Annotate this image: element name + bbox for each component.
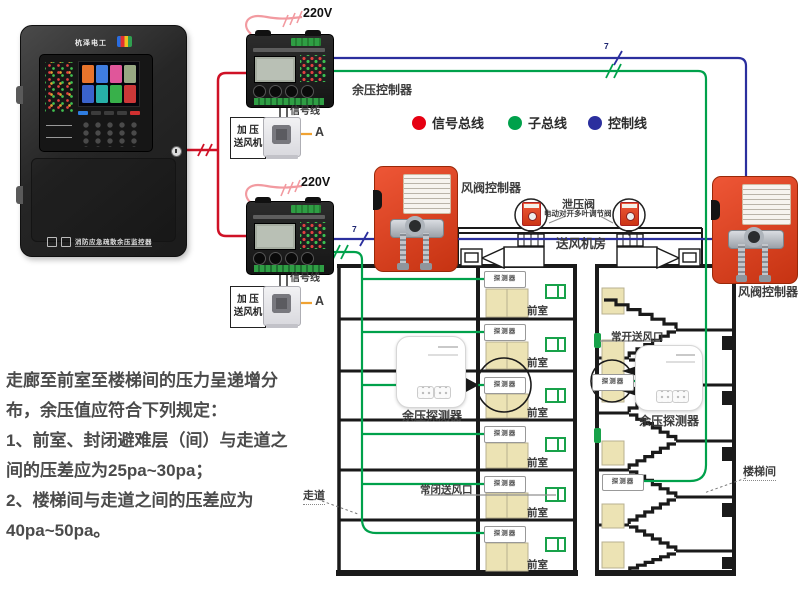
device-label-panel: [742, 184, 791, 224]
keypad: [80, 121, 140, 147]
legend-dot-subbus: [508, 116, 522, 130]
detector-box: 探测器: [592, 374, 634, 391]
note-line: 40pa~50pa。: [6, 516, 336, 546]
front-room-label: 前室: [527, 405, 548, 420]
controller-buttons: [253, 252, 314, 265]
cabinet-nameplate: 消防应急疏散余压监控器: [47, 236, 171, 247]
mounting-ear: [305, 30, 321, 36]
nc-outlet-label: 常闭送风口: [420, 482, 473, 497]
pressure-monitor-cabinet: 杭泽电工 消防应急疏散余压监控器: [20, 25, 187, 257]
ammeter-label-2: A: [315, 294, 324, 308]
device-text-line: [676, 354, 696, 356]
note-line: 1、前室、封闭避难层（间）与走道之: [6, 426, 336, 456]
note-line: 2、楼梯间与走道之间的压差应为: [6, 486, 336, 516]
terminal-block: [291, 205, 321, 213]
cabinet-hinge: [16, 86, 23, 104]
label-slot: [46, 137, 72, 138]
device-title-strip: [253, 48, 325, 52]
clamp-rod: [738, 244, 745, 276]
legend-label-signal: 信号总线: [432, 113, 484, 132]
front-room-label: 前室: [527, 455, 548, 470]
wire-count-mark: 7: [604, 41, 609, 51]
pressure-detector-device-right: [635, 345, 703, 411]
fan-room-label: 送风机房: [556, 233, 606, 252]
clamp-nut: [397, 263, 408, 270]
cabinet-lock: [171, 146, 182, 157]
no-vent-marker: [594, 333, 601, 348]
mounting-ear: [255, 30, 271, 36]
note-line: 布，余压值应符合下列规定：: [6, 396, 336, 426]
device-text-line: [666, 361, 695, 363]
led-matrix: [300, 222, 326, 249]
clamp-rod: [762, 244, 769, 276]
cabinet-lower-door: [31, 158, 176, 242]
label-slot: [46, 125, 72, 126]
legend-label-subbus: 子总线: [528, 113, 567, 132]
note-line: 走廊至前室至楼梯间的压力呈递增分: [6, 366, 336, 396]
detector-box: 探测器: [602, 474, 644, 491]
power-label-2: 220V: [301, 175, 330, 189]
touch-screen: [78, 61, 140, 107]
lcd-display: [254, 56, 296, 83]
note-line: 间的压差应为25pa~30pa；: [6, 456, 336, 486]
device-text-line: [438, 346, 458, 348]
detector-box: 探测器: [484, 526, 526, 543]
clamp-nut: [736, 275, 748, 282]
function-buttons: [78, 111, 140, 117]
terminal-block: [291, 38, 321, 46]
detector-button: [672, 390, 689, 403]
ammeter-label-1: A: [315, 125, 324, 139]
device-title-strip: [253, 215, 325, 219]
legend-label-control: 控制线: [608, 113, 647, 132]
wire-count-mark: 7: [352, 224, 357, 234]
clamp-nut: [759, 275, 771, 282]
wifi-icon: [61, 237, 71, 247]
clamp-nut: [420, 263, 431, 270]
fan-box-text: 送风机: [231, 138, 265, 151]
fan-box-text: 送风机: [231, 307, 265, 320]
damper-controller-left: [374, 166, 458, 272]
signal-line-label-1: 信号线: [290, 102, 320, 117]
front-room-label: 前室: [527, 303, 548, 318]
fan-box-text: 加 压: [231, 294, 265, 307]
side-notch: [711, 200, 720, 220]
power-label-1: 220V: [303, 6, 332, 20]
cabinet-brand: 杭泽电工: [75, 38, 107, 48]
pressure-detector-label-right: 余压探测器: [639, 412, 699, 429]
front-room-label: 前室: [527, 505, 548, 520]
relief-valve-device: [522, 202, 541, 226]
legend-dot-signal: [412, 116, 426, 130]
mounting-ear: [305, 197, 321, 203]
detector-box: 探测器: [484, 426, 526, 443]
air-outlet-icons: [546, 285, 565, 551]
cabinet-model-text: 消防应急疏散余压监控器: [75, 236, 152, 247]
controller-label: 余压控制器: [352, 81, 412, 98]
signal-line-label-2: 信号线: [290, 269, 320, 284]
legend-dot-control: [588, 116, 602, 130]
led-matrix: [300, 55, 326, 82]
led-indicators: [45, 62, 73, 112]
clamp-rod: [400, 233, 407, 264]
damper-controller-right: [712, 176, 798, 284]
mounting-ear: [255, 197, 271, 203]
cabinet-panel: [39, 54, 153, 152]
no-vent-marker: [594, 428, 601, 443]
detector-box: 探测器: [484, 324, 526, 341]
pressurized-fan-box-2: 加 压 送风机: [230, 286, 266, 328]
cabinet-hinge: [16, 186, 23, 204]
cabinet-logo: [117, 36, 132, 47]
diagram-canvas: 杭泽电工 消防应急疏散余压监控器 加 压 送风机 加 压 送风机: [0, 0, 800, 590]
relief-valve-sub-label: 电动对开多叶调节阀: [544, 208, 612, 219]
detector-box: 探测器: [484, 271, 526, 288]
pressure-controller-1: [246, 34, 334, 108]
detector-button: [417, 386, 434, 399]
bluetooth-icon: [47, 237, 57, 247]
fan-box-text: 加 压: [231, 125, 265, 138]
device-label-panel: [403, 174, 451, 213]
stairwell-label: 楼梯间: [743, 463, 776, 481]
damper-controller-label-right: 风阀控制器: [738, 283, 798, 300]
front-room-label: 前室: [527, 557, 548, 572]
damper-controller-label-left: 风阀控制器: [461, 179, 521, 196]
current-transformer-2: [263, 286, 301, 326]
pressure-controller-2: [246, 201, 334, 275]
relief-valve-device: [620, 202, 639, 226]
side-notch: [373, 190, 382, 210]
front-room-label: 前室: [527, 355, 548, 370]
no-outlet-label: 常开送风口: [611, 329, 664, 344]
pressure-detector-device-left: [396, 336, 466, 408]
detector-box: 探测器: [484, 377, 526, 394]
pressure-detector-label-left: 余压探测器: [402, 407, 462, 424]
stairwell-leader: [704, 478, 746, 493]
clamp-rod: [423, 233, 430, 264]
lcd-display: [254, 223, 296, 250]
detector-button: [434, 386, 451, 399]
detector-box: 探测器: [484, 476, 526, 493]
detector-button: [656, 390, 673, 403]
controller-buttons: [253, 85, 314, 98]
pressurized-fan-box-1: 加 压 送风机: [230, 117, 266, 159]
current-transformer-1: [263, 117, 301, 157]
device-text-line: [428, 354, 458, 356]
regulation-note: 走廊至前室至楼梯间的压力呈递增分 布，余压值应符合下列规定： 1、前室、封闭避难…: [6, 366, 336, 546]
